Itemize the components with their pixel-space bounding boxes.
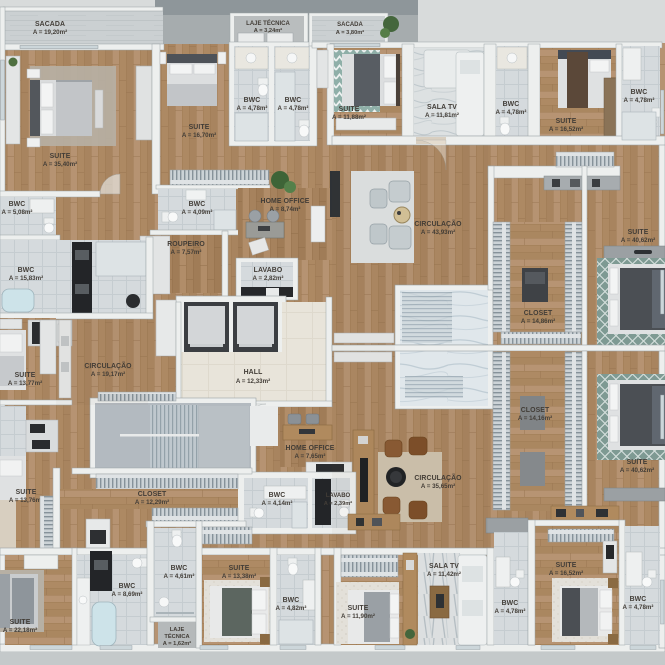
svg-text:ROUPEIRO: ROUPEIRO — [167, 241, 205, 248]
svg-text:BWC: BWC — [503, 101, 520, 108]
svg-text:A = 3,24m²: A = 3,24m² — [254, 27, 283, 34]
svg-text:A = 7,57m²: A = 7,57m² — [171, 249, 202, 256]
svg-text:BWC: BWC — [189, 201, 206, 208]
svg-text:A = 22,18m²: A = 22,18m² — [3, 627, 37, 634]
svg-text:CLOSET: CLOSET — [138, 491, 167, 498]
svg-text:BWC: BWC — [502, 600, 519, 607]
svg-text:BWC: BWC — [631, 89, 648, 96]
svg-text:A = 4,78m²: A = 4,78m² — [496, 109, 527, 116]
svg-text:SACADA: SACADA — [35, 21, 65, 28]
svg-text:A = 4,78m²: A = 4,78m² — [237, 105, 268, 112]
svg-text:LAJE: LAJE — [170, 627, 185, 633]
svg-text:A = 16,70m²: A = 16,70m² — [182, 132, 216, 139]
svg-text:A = 4,09m²: A = 4,09m² — [182, 209, 213, 216]
svg-text:A = 40,62m²: A = 40,62m² — [621, 237, 655, 244]
svg-text:SUITE: SUITE — [50, 153, 71, 160]
svg-text:BWC: BWC — [119, 583, 136, 590]
svg-text:A = 40,62m²: A = 40,62m² — [620, 467, 654, 474]
svg-text:BWC: BWC — [244, 97, 261, 104]
svg-text:A = 13,38m²: A = 13,38m² — [222, 573, 256, 580]
svg-text:A = 12,29m²: A = 12,29m² — [135, 499, 169, 506]
svg-text:CLOSET: CLOSET — [521, 407, 550, 414]
svg-text:LAVABO: LAVABO — [254, 267, 283, 274]
svg-text:A = 16,52m²: A = 16,52m² — [549, 570, 583, 577]
svg-text:A = 14,16m²: A = 14,16m² — [518, 415, 552, 422]
svg-text:A = 4,61m²: A = 4,61m² — [164, 573, 195, 580]
svg-text:A = 35,40m²: A = 35,40m² — [43, 161, 77, 168]
svg-text:A = 8,74m²: A = 8,74m² — [270, 206, 301, 213]
svg-text:SALA TV: SALA TV — [429, 563, 459, 570]
svg-text:LAJE TÉCNICA: LAJE TÉCNICA — [246, 19, 290, 27]
svg-text:HALL: HALL — [244, 369, 263, 376]
svg-text:BWC: BWC — [283, 597, 300, 604]
svg-text:A = 11,90m²: A = 11,90m² — [341, 613, 375, 620]
svg-text:SUITE: SUITE — [229, 565, 250, 572]
svg-text:A = 12,33m²: A = 12,33m² — [236, 378, 270, 385]
svg-text:BWC: BWC — [18, 267, 35, 274]
svg-text:SUITE: SUITE — [16, 489, 37, 496]
svg-text:SUITE: SUITE — [10, 619, 31, 626]
svg-text:SUITE: SUITE — [556, 118, 577, 125]
svg-text:A = 1,62m²: A = 1,62m² — [163, 640, 192, 647]
svg-text:BWC: BWC — [285, 97, 302, 104]
svg-text:SUITE: SUITE — [627, 459, 648, 466]
svg-text:A = 4,14m²: A = 4,14m² — [262, 500, 293, 507]
svg-text:SACADA: SACADA — [337, 22, 363, 28]
svg-text:A = 11,88m²: A = 11,88m² — [332, 114, 366, 121]
svg-text:A = 4,78m²: A = 4,78m² — [278, 105, 309, 112]
svg-text:A = 4,82m²: A = 4,82m² — [276, 605, 307, 612]
svg-text:A = 4,78m²: A = 4,78m² — [624, 97, 655, 104]
svg-text:A = 15,83m²: A = 15,83m² — [9, 275, 43, 282]
svg-text:BWC: BWC — [171, 565, 188, 572]
svg-text:BWC: BWC — [269, 492, 286, 499]
svg-text:A = 11,81m²: A = 11,81m² — [425, 112, 459, 119]
svg-text:SUITE: SUITE — [628, 229, 649, 236]
svg-text:A = 13,76m²: A = 13,76m² — [9, 497, 43, 504]
svg-text:HOME OFFICE: HOME OFFICE — [286, 445, 335, 452]
svg-text:A = 8,69m²: A = 8,69m² — [112, 591, 143, 598]
svg-text:A = 5,08m²: A = 5,08m² — [2, 209, 33, 216]
svg-text:SUITE: SUITE — [189, 124, 210, 131]
svg-text:BWC: BWC — [630, 596, 647, 603]
svg-text:A = 19,20m²: A = 19,20m² — [33, 29, 67, 36]
svg-text:A = 7,65m²: A = 7,65m² — [295, 453, 326, 460]
svg-text:BWC: BWC — [9, 201, 26, 208]
svg-text:SUITE: SUITE — [348, 605, 369, 612]
svg-text:A = 3,80m²: A = 3,80m² — [336, 29, 365, 36]
svg-text:A = 14,86m²: A = 14,86m² — [521, 318, 555, 325]
svg-text:HOME OFFICE: HOME OFFICE — [261, 198, 310, 205]
svg-text:A = 11,42m²: A = 11,42m² — [427, 571, 461, 578]
svg-text:CLOSET: CLOSET — [524, 310, 553, 317]
svg-text:A = 2,82m²: A = 2,82m² — [253, 275, 284, 282]
svg-text:A = 16,52m²: A = 16,52m² — [549, 126, 583, 133]
svg-text:SALA TV: SALA TV — [427, 104, 457, 111]
svg-text:SUITE: SUITE — [15, 372, 36, 379]
svg-text:SUITE: SUITE — [339, 106, 360, 113]
svg-text:SUITE: SUITE — [556, 562, 577, 569]
svg-text:A = 4,78m²: A = 4,78m² — [495, 608, 526, 615]
svg-text:A = 13,77m²: A = 13,77m² — [8, 380, 42, 387]
svg-text:TÉCNICA: TÉCNICA — [164, 632, 189, 640]
svg-text:A = 4,78m²: A = 4,78m² — [623, 604, 654, 611]
